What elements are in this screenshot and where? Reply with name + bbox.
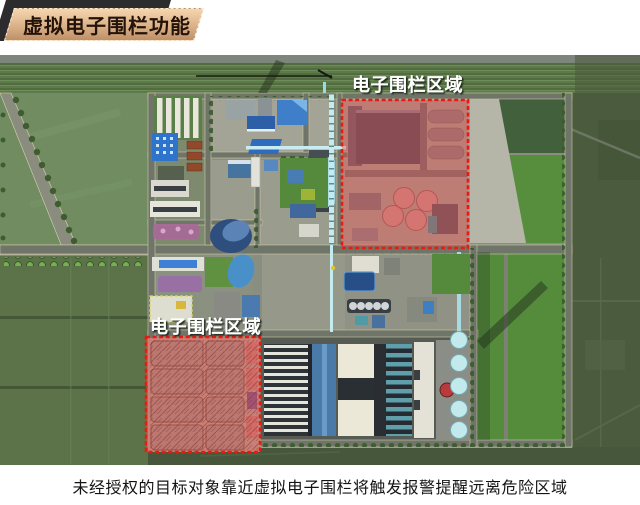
south-plant-buildings xyxy=(264,332,470,441)
swimming-pool xyxy=(159,260,197,268)
fence-zone-north-fill xyxy=(342,100,468,248)
site-aerial-map: 电子围栏区域 电子围栏区域 xyxy=(0,55,640,465)
dormitory-windows xyxy=(156,137,173,154)
fence-zone-north xyxy=(342,100,468,248)
fence-zone-southwest-fill xyxy=(146,337,260,452)
fence-zone-label-north: 电子围栏区域 xyxy=(352,74,463,95)
striped-warehouse xyxy=(264,344,308,436)
slide-caption: 未经授权的目标对象靠近虚拟电子围栏将触发报警提醒远离危险区域 xyxy=(0,474,640,498)
fence-zone-label-southwest: 电子围栏区域 xyxy=(150,316,261,337)
turbine-hall-units xyxy=(386,344,412,436)
title-banner: 虚拟电子围栏功能 xyxy=(4,8,204,41)
page-title: 虚拟电子围栏功能 xyxy=(10,10,191,39)
fence-zone-southwest xyxy=(146,337,260,452)
cooling-fan-row xyxy=(349,302,389,310)
slide: 虚拟电子围栏功能 xyxy=(0,0,640,505)
storage-containers xyxy=(187,141,202,171)
